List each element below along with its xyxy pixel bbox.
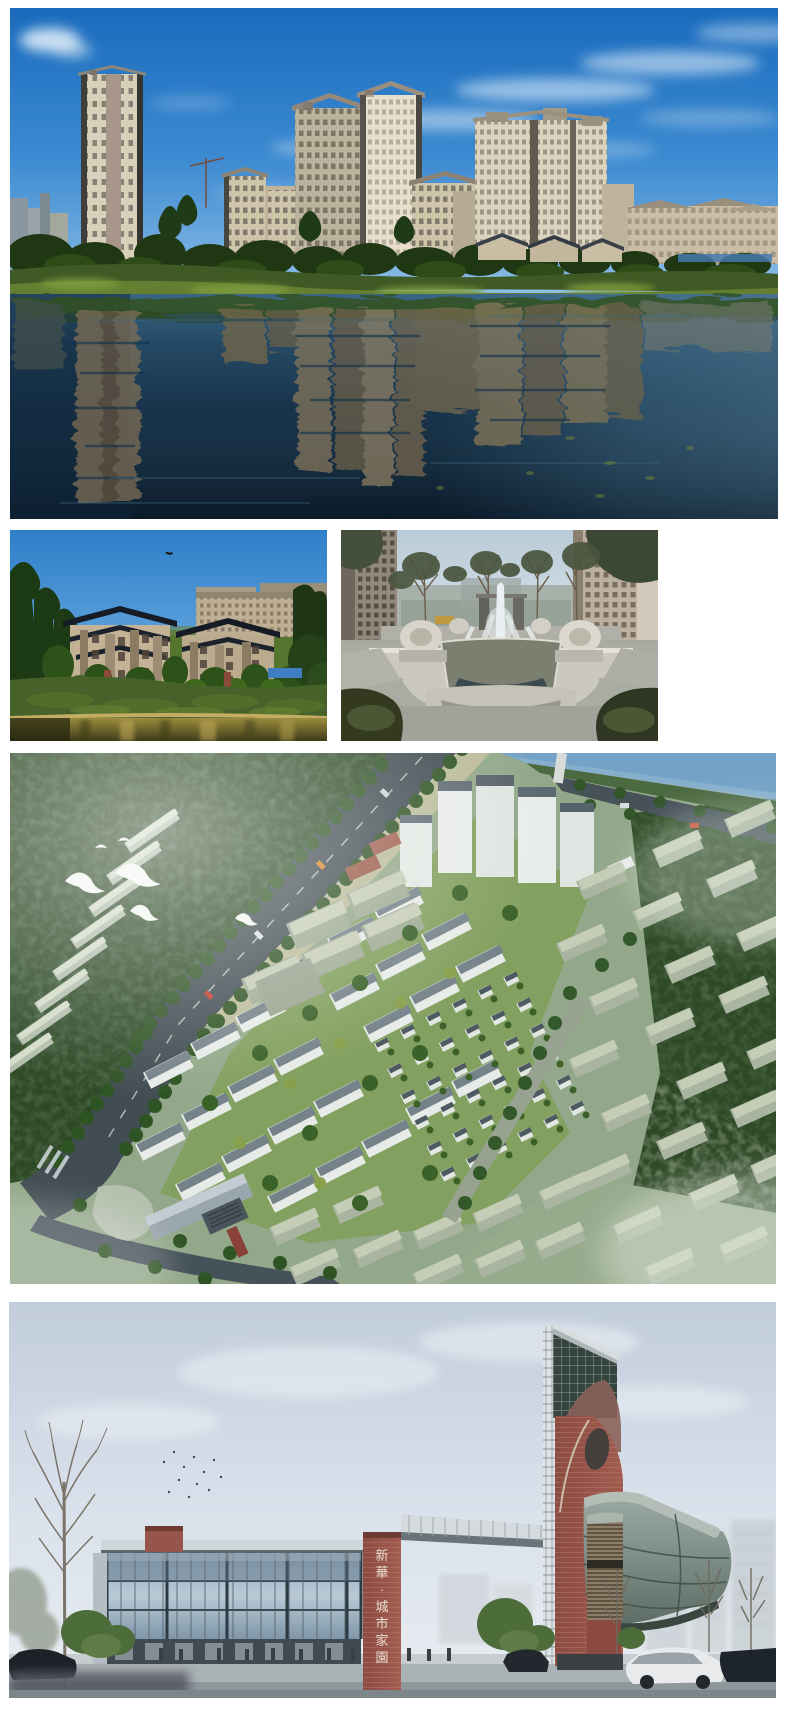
svg-text:新: 新	[375, 1548, 388, 1563]
svg-text:·: ·	[380, 1582, 384, 1597]
svg-text:城: 城	[375, 1599, 388, 1614]
svg-text:華: 華	[375, 1565, 388, 1580]
svg-text:園: 園	[375, 1650, 388, 1665]
svg-text:市: 市	[375, 1616, 388, 1631]
svg-text:家: 家	[375, 1633, 388, 1648]
